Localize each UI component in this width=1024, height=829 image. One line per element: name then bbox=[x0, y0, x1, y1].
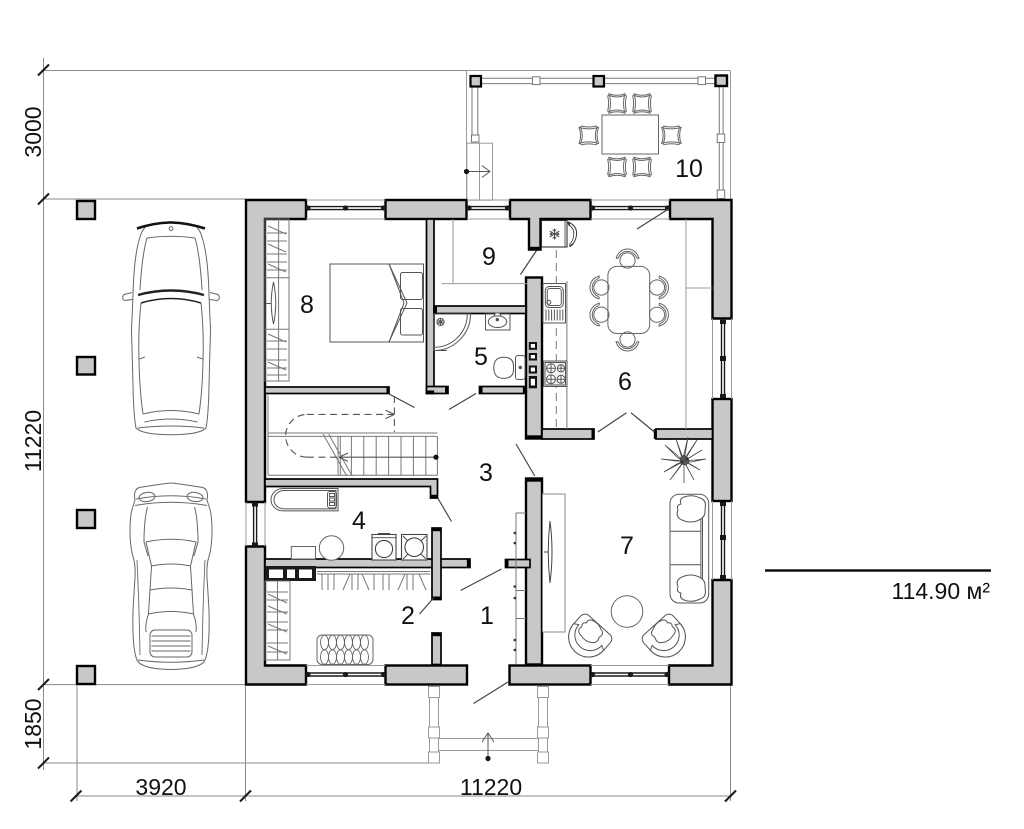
svg-text:11220: 11220 bbox=[20, 410, 46, 472]
svg-text:10: 10 bbox=[675, 155, 703, 183]
svg-text:2: 2 bbox=[401, 602, 415, 630]
svg-text:7: 7 bbox=[620, 532, 634, 560]
svg-text:9: 9 bbox=[482, 243, 496, 271]
svg-text:3000: 3000 bbox=[20, 106, 46, 157]
svg-text:3: 3 bbox=[479, 459, 493, 487]
svg-text:8: 8 bbox=[300, 291, 314, 319]
svg-text:1850: 1850 bbox=[20, 698, 46, 749]
svg-text:3920: 3920 bbox=[135, 774, 186, 800]
svg-text:5: 5 bbox=[474, 343, 488, 371]
svg-text:1: 1 bbox=[480, 602, 494, 630]
svg-text:114.90 м²: 114.90 м² bbox=[891, 578, 990, 604]
svg-text:4: 4 bbox=[352, 507, 366, 535]
svg-text:6: 6 bbox=[618, 368, 632, 396]
svg-text:11220: 11220 bbox=[460, 774, 522, 800]
